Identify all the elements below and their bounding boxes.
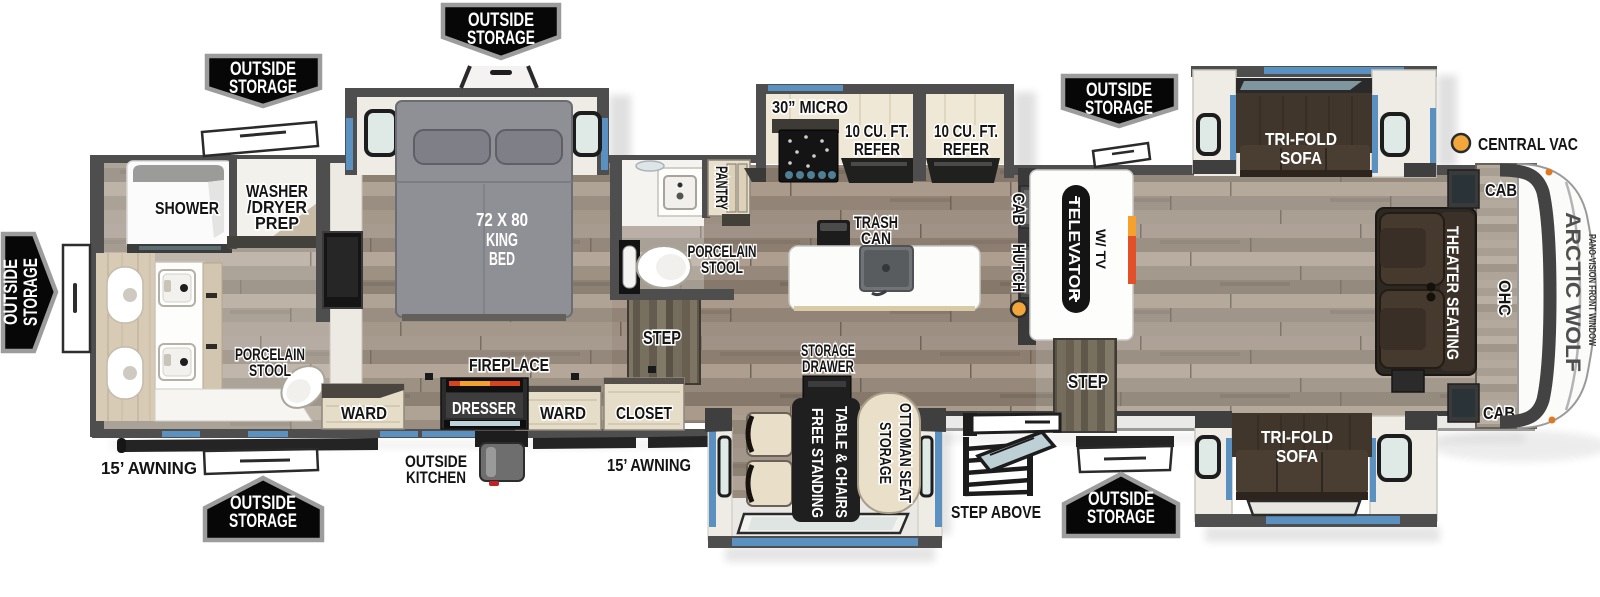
svg-text:REFER: REFER [854,139,900,159]
svg-text:STEP: STEP [643,328,681,348]
svg-text:CENTRAL VAC: CENTRAL VAC [1478,134,1578,154]
svg-text:FIREPLACE: FIREPLACE [469,355,549,375]
svg-text:KING: KING [486,230,518,250]
svg-text:STORAGE: STORAGE [229,511,297,532]
svg-text:TRI-FOLD: TRI-FOLD [1261,427,1333,447]
svg-text:OTTOMAN SEAT: OTTOMAN SEAT [896,403,913,503]
svg-text:W/ TV: W/ TV [1093,229,1109,270]
svg-text:15’ AWNING: 15’ AWNING [607,455,691,475]
svg-text:PANO-VISION FRONT WINDOW: PANO-VISION FRONT WINDOW [1586,234,1598,346]
svg-text:PANTRY: PANTRY [712,166,731,210]
svg-text:SHOWER: SHOWER [155,198,219,218]
svg-text:72 X 80: 72 X 80 [476,210,528,230]
svg-text:30” MICRO: 30” MICRO [772,97,848,117]
svg-text:ARCTIC WOLF: ARCTIC WOLF [1561,212,1584,372]
svg-text:15’ AWNING: 15’ AWNING [101,458,197,478]
svg-text:10 CU. FT.: 10 CU. FT. [845,121,909,141]
svg-text:OHC: OHC [1495,280,1514,316]
svg-text:FREE STANDING: FREE STANDING [808,408,825,518]
svg-text:STEP: STEP [1068,372,1108,392]
svg-text:HUTCH: HUTCH [1009,244,1028,292]
svg-text:DRESSER: DRESSER [452,398,516,418]
svg-text:STORAGE: STORAGE [21,258,42,326]
svg-text:CAB: CAB [1485,180,1517,200]
svg-text:STORAGE: STORAGE [1085,98,1153,119]
svg-text:CAB: CAB [1009,193,1028,225]
svg-text:WARD: WARD [341,403,387,423]
svg-text:STORAGE: STORAGE [1087,507,1155,528]
svg-text:DRAWER: DRAWER [802,357,854,376]
svg-text:SOFA: SOFA [1276,446,1318,466]
svg-text:CLOSET: CLOSET [616,403,672,423]
svg-text:STEP ABOVE: STEP ABOVE [951,502,1041,522]
svg-text:TELEVATOR: TELEVATOR [1065,197,1082,301]
svg-text:10 CU. FT.: 10 CU. FT. [934,121,998,141]
svg-text:STORAGE: STORAGE [876,422,893,484]
svg-text:KITCHEN: KITCHEN [406,468,466,487]
svg-text:REFER: REFER [943,139,989,159]
svg-text:TRI-FOLD: TRI-FOLD [1265,129,1337,149]
svg-text:STORAGE: STORAGE [467,28,535,49]
svg-text:PREP: PREP [255,213,299,233]
svg-text:STOOL: STOOL [249,361,291,380]
svg-text:STORAGE: STORAGE [229,77,297,98]
svg-text:SOFA: SOFA [1280,148,1322,168]
svg-text:TABLE & CHAIRS: TABLE & CHAIRS [832,406,849,518]
svg-text:WARD: WARD [540,403,586,423]
svg-text:BED: BED [489,249,515,269]
svg-text:STOOL: STOOL [701,258,743,277]
svg-text:THEATER SEATING: THEATER SEATING [1443,226,1462,360]
svg-text:OUTSIDE: OUTSIDE [1,259,22,325]
